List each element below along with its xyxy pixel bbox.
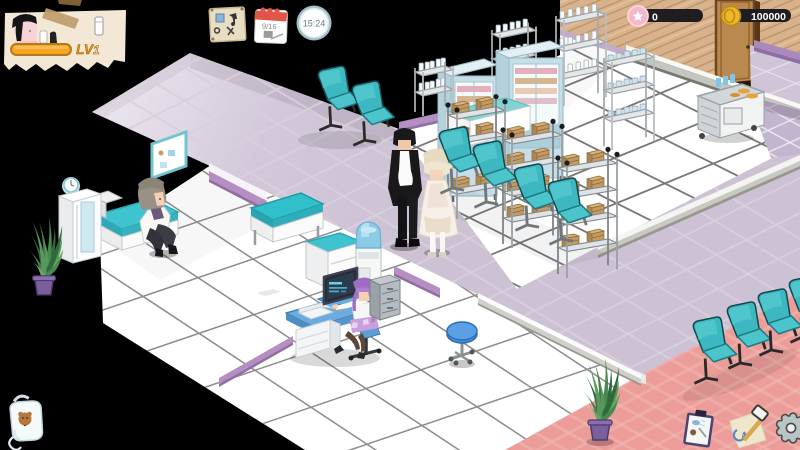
svg-text:9/16: 9/16 — [262, 22, 277, 32]
svg-text:0: 0 — [652, 12, 658, 24]
svg-text:100000: 100000 — [751, 11, 786, 23]
svg-text:15:24: 15:24 — [303, 19, 326, 29]
svg-text:LV: LV — [76, 41, 95, 57]
svg-text:1: 1 — [93, 43, 100, 57]
